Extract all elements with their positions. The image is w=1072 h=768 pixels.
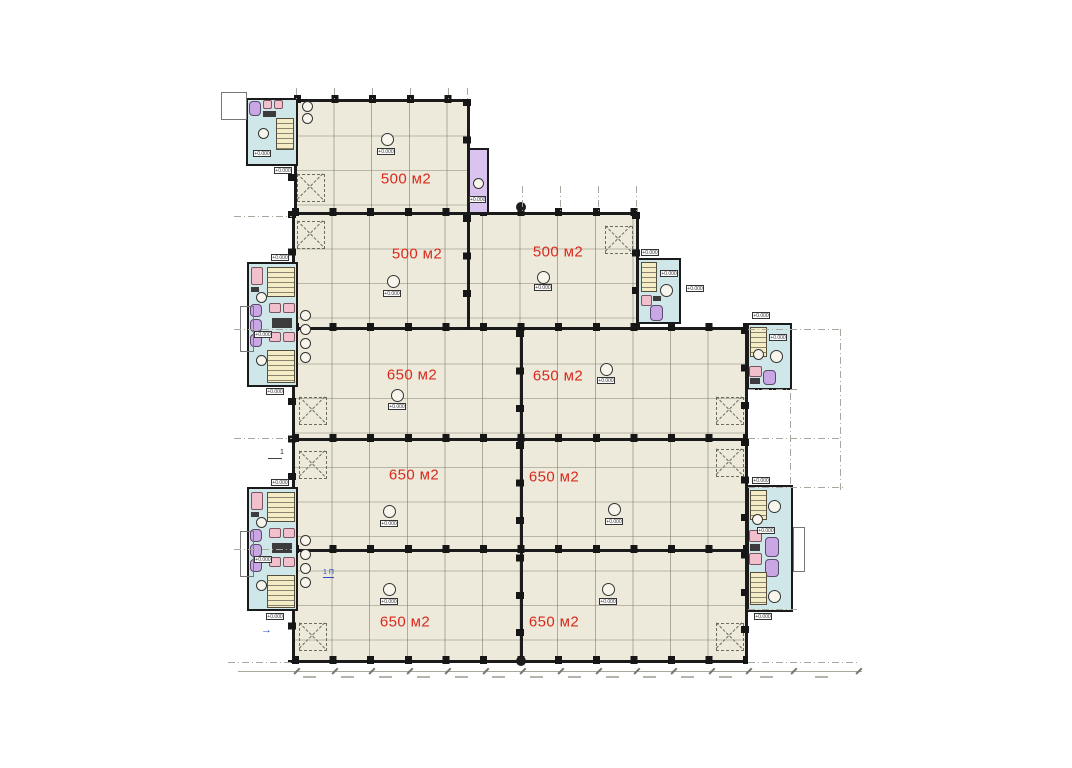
extension-line (372, 88, 373, 99)
sink-icon (269, 528, 281, 538)
canopy-outline (793, 527, 805, 572)
counter-icon (251, 287, 259, 292)
counter-icon (653, 296, 661, 301)
elevation-label: +0.000 (271, 479, 289, 486)
dimension-text-smudge (760, 676, 773, 678)
marker-circle (602, 583, 615, 596)
elevation-label: +0.000 (752, 477, 770, 484)
elevation-label: +0.000 (266, 613, 284, 620)
area-label: 500 м2 (533, 244, 583, 261)
dimension-text-smudge (568, 676, 581, 678)
elevation-label: +0.000 (754, 613, 772, 620)
column-grid-strip (294, 95, 470, 103)
marker-circle (300, 563, 311, 574)
counter-icon (272, 543, 292, 553)
area-label: 650 м2 (533, 368, 583, 385)
elevation-label: +0.000 (599, 598, 617, 605)
marker-circle (391, 389, 404, 402)
marker-circle (383, 583, 396, 596)
stairs-icon (276, 118, 294, 150)
sink-icon (251, 492, 263, 510)
area-label: 500 м2 (381, 171, 431, 188)
floor-plan: +0.000 +0.000 +0.000 +0.000 +0.000 +0.00… (0, 0, 1072, 768)
marker-circle (600, 363, 613, 376)
marker-circle (300, 352, 311, 363)
dimension-text-smudge (492, 676, 505, 678)
shaft-opening (299, 397, 327, 425)
marker-circle (302, 113, 313, 124)
marker-circle (256, 355, 267, 366)
elevation-label: +0.000 (377, 148, 395, 155)
marker-circle (387, 275, 400, 288)
dimension-text-smudge (303, 676, 316, 678)
counter-icon (750, 378, 760, 384)
sink-icon (251, 267, 263, 285)
extension-line (790, 393, 791, 487)
marker-circle (768, 500, 781, 513)
marker-circle (770, 350, 783, 363)
grid-bubble (516, 656, 526, 666)
stairs-icon (267, 575, 295, 608)
marker-circle (473, 178, 484, 189)
grid-bubble (516, 202, 526, 212)
marker-circle (300, 324, 311, 335)
elevation-label: +0.000 (534, 284, 552, 291)
marker-circle (256, 517, 267, 528)
marker-circle (300, 338, 311, 349)
elevation-label: +0.000 (686, 285, 704, 292)
extension-line (748, 609, 800, 610)
shaft-opening (299, 623, 327, 651)
blue-arrow-icon: → (261, 625, 272, 636)
counter-icon (263, 111, 276, 117)
marker-circle (256, 580, 267, 591)
blue-annotation: 1 П (323, 569, 334, 578)
area-label: 650 м2 (529, 469, 579, 486)
elevation-label: +0.000 (605, 518, 623, 525)
counter-icon (272, 318, 292, 328)
column-grid-strip (516, 330, 524, 660)
extension-line (234, 549, 292, 550)
area-label: 650 м2 (387, 367, 437, 384)
shaft-opening (605, 226, 633, 254)
extension-line (748, 329, 842, 330)
elevation-label: +0.000 (380, 598, 398, 605)
marker-circle (753, 349, 764, 360)
column-grid-strip (463, 99, 471, 149)
elevation-label: +0.000 (757, 527, 775, 534)
marker-circle (256, 292, 267, 303)
extension-line (234, 329, 292, 330)
extension-line (560, 186, 561, 212)
elevation-label: +0.000 (388, 403, 406, 410)
elevation-label: +0.000 (383, 290, 401, 297)
sink-icon (749, 366, 762, 377)
toilet-icon (765, 559, 779, 577)
marker-circle (381, 133, 394, 146)
elevation-label: +0.000 (266, 388, 284, 395)
marker-circle (768, 590, 781, 603)
extension-line (448, 88, 449, 99)
area-label: 650 м2 (389, 467, 439, 484)
shaft-opening (297, 221, 325, 249)
elevation-label: +0.000 (380, 520, 398, 527)
section-mark: 1 (280, 449, 284, 457)
marker-circle (537, 271, 550, 284)
elevation-label: +0.000 (597, 377, 615, 384)
extension-line (334, 88, 335, 99)
dimension-text-smudge (379, 676, 392, 678)
extension-line (840, 329, 841, 490)
toilet-icon (763, 370, 776, 385)
extension-line (234, 216, 292, 217)
extension-line (467, 88, 468, 99)
elevation-label: +0.000 (254, 331, 272, 338)
sink-icon (283, 528, 295, 538)
extension-line (748, 487, 845, 488)
extension-line (522, 186, 523, 212)
dimension-text-smudge (417, 676, 430, 678)
shaft-opening (299, 451, 327, 479)
extension-line (410, 88, 411, 99)
extension-line (748, 389, 800, 390)
marker-circle (608, 503, 621, 516)
toilet-icon (650, 305, 663, 321)
elevation-label: +0.000 (660, 270, 678, 277)
sink-icon (641, 295, 652, 306)
extension-line (296, 88, 297, 99)
dimension-text-smudge (455, 676, 468, 678)
marker-circle (300, 535, 311, 546)
dimension-text-smudge (719, 676, 732, 678)
extension-line (228, 662, 292, 663)
sink-icon (283, 303, 295, 313)
stairs-icon (267, 350, 295, 383)
elevation-label: +0.000 (274, 167, 292, 174)
dimension-text-smudge (681, 676, 694, 678)
marker-circle (752, 514, 763, 525)
area-label: 650 м2 (529, 614, 579, 631)
sink-icon (263, 100, 272, 109)
stairs-icon (267, 267, 295, 297)
column-grid-strip (463, 215, 471, 330)
dimension-text-smudge (341, 676, 354, 678)
extension-line (234, 438, 292, 439)
stairs-icon (641, 262, 657, 292)
toilet-icon (249, 101, 261, 116)
dimension-text-smudge (643, 676, 656, 678)
sink-icon (283, 557, 295, 567)
elevation-label: +0.000 (254, 556, 272, 563)
shaft-opening (716, 449, 744, 477)
extension-line (636, 186, 637, 212)
marker-circle (383, 505, 396, 518)
toilet-icon (765, 537, 779, 557)
sink-icon (283, 332, 295, 342)
dimension-text-smudge (606, 676, 619, 678)
shaft-opening (716, 397, 744, 425)
shaft-opening (297, 174, 325, 202)
extension-line (748, 438, 842, 439)
elevation-label: +0.000 (769, 334, 787, 341)
section-mark-line (268, 458, 282, 459)
marker-circle (300, 577, 311, 588)
elevation-label: +0.000 (752, 312, 770, 319)
sink-icon (749, 553, 762, 565)
marker-circle (660, 284, 673, 297)
area-label: 500 м2 (392, 246, 442, 263)
sink-icon (274, 100, 283, 109)
elevation-label: +0.000 (469, 196, 486, 203)
counter-icon (251, 512, 259, 517)
elevation-label: +0.000 (641, 249, 659, 256)
dimension-text-smudge (815, 676, 828, 678)
dimension-text-smudge (530, 676, 543, 678)
sink-icon (269, 303, 281, 313)
marker-circle (300, 549, 311, 560)
elevation-label: +0.000 (271, 254, 289, 261)
stairs-icon (750, 572, 767, 605)
elevation-label: +0.000 (253, 150, 271, 157)
marker-circle (302, 101, 313, 112)
shaft-opening (716, 623, 744, 651)
marker-circle (258, 128, 269, 139)
canopy-outline (221, 92, 247, 120)
counter-icon (750, 544, 760, 551)
area-label: 650 м2 (380, 614, 430, 631)
marker-circle (300, 310, 311, 321)
stairs-icon (267, 492, 295, 522)
extension-line (748, 662, 860, 663)
extension-line (598, 186, 599, 212)
canopy-outline (240, 531, 254, 577)
